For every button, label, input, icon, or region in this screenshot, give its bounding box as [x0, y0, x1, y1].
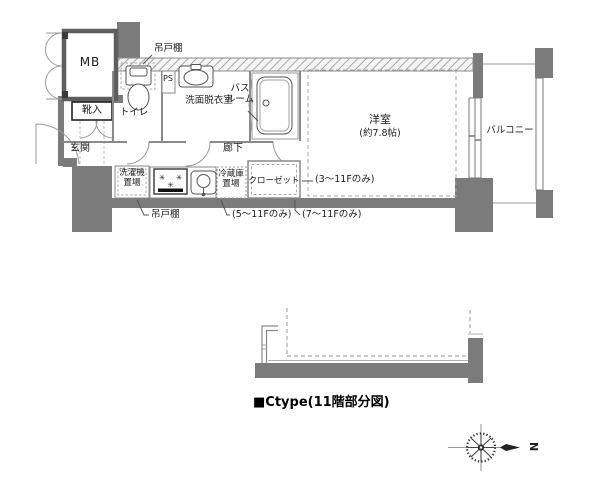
label-toilet: トイレ — [120, 108, 149, 119]
kitchen: ✳ ✳ ✳ — [150, 167, 216, 198]
stove-burner-icon: ✳ — [159, 173, 165, 182]
label-mb: MB — [80, 56, 101, 70]
plan-caption: ■Ctype(11階部分図) — [253, 396, 390, 411]
label-corridor: 廊下 — [223, 143, 243, 155]
partial-plan — [255, 308, 483, 383]
vanity — [179, 65, 213, 88]
stove-burner-icon: ✳ — [167, 181, 173, 190]
north-needle — [500, 444, 520, 451]
mb-doors — [46, 33, 62, 99]
stove-burner-icon: ✳ — [176, 173, 182, 182]
sliding-window — [469, 98, 481, 178]
label-pipe-space: PS — [163, 74, 173, 83]
compass-icon: N — [448, 424, 540, 471]
label-hanging-cupboard-top: 吊戸棚 — [154, 44, 183, 55]
label-western-room: 洋室 — [369, 114, 391, 127]
label-western-room-size: (約7.8帖) — [359, 129, 401, 140]
plan-linework: ✳ ✳ ✳ — [0, 0, 616, 492]
bathroom-unit — [249, 73, 298, 139]
note-floors-7-11: (7〜11Fのみ) — [302, 210, 362, 221]
label-bathroom: バス ルーム — [226, 84, 254, 106]
balcony-railing — [536, 78, 543, 190]
compass-north-label: N — [527, 442, 540, 451]
note-floors-5-11: (5〜11Fのみ) — [232, 210, 292, 221]
hatched-wall — [100, 58, 473, 71]
bathtub — [257, 77, 292, 134]
note-floors-3-11: (3〜11Fのみ) — [315, 175, 375, 186]
entrance-inner-doors — [80, 121, 113, 138]
label-balcony: バルコニー — [486, 126, 533, 137]
label-entrance: 玄関 — [70, 143, 90, 155]
label-laundry: 洗濯機 置場 — [119, 169, 145, 189]
label-hanging-cupboard-bottom: 吊戸棚 — [151, 210, 180, 221]
label-fridge: 冷蔵庫 置場 — [218, 170, 244, 190]
grill — [158, 189, 183, 193]
label-shoe-cabinet: 靴入 — [82, 105, 102, 117]
floor-plan: ✳ ✳ ✳ — [0, 0, 616, 492]
toilet-fixture — [121, 63, 155, 110]
label-closet: クローゼット — [248, 177, 299, 187]
